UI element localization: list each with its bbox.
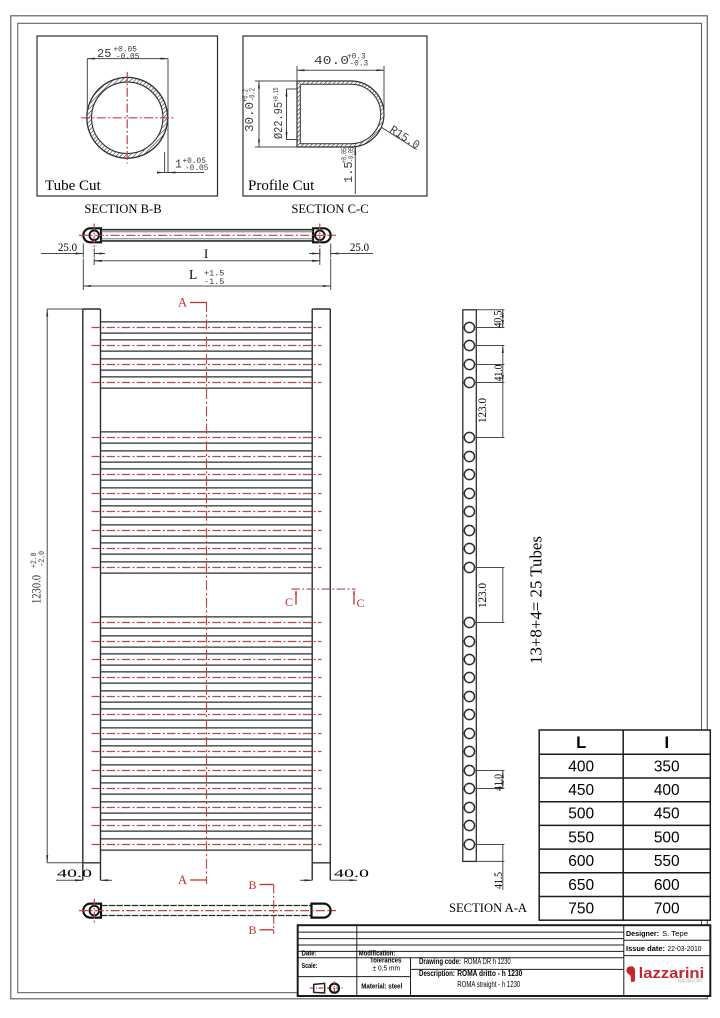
svg-text:C: C	[285, 595, 293, 609]
svg-text:+0.15: +0.15	[273, 88, 281, 103]
svg-text:Material: steel: Material: steel	[361, 981, 402, 990]
svg-text:Designer:: Designer:	[626, 929, 659, 938]
svg-text:700: 700	[654, 901, 680, 918]
svg-text:ROMA DR h 1230: ROMA DR h 1230	[464, 957, 511, 966]
svg-text:A: A	[178, 873, 187, 887]
svg-text:B: B	[249, 878, 257, 892]
svg-text:25: 25	[97, 47, 111, 61]
svg-text:SECTION B-B: SECTION B-B	[84, 202, 161, 216]
svg-text:350: 350	[654, 758, 680, 775]
svg-text:13+8+4= 25 Tubes: 13+8+4= 25 Tubes	[527, 536, 546, 664]
svg-text:-0.3: -0.3	[350, 61, 369, 69]
svg-text:-0.2: -0.2	[250, 88, 258, 101]
svg-text:600: 600	[568, 853, 594, 870]
svg-text:ROMA dritto - h 1230: ROMA dritto - h 1230	[457, 969, 523, 978]
svg-text:500: 500	[568, 806, 594, 823]
svg-text:Profile Cut: Profile Cut	[248, 178, 315, 194]
svg-text:Issue date:: Issue date:	[626, 944, 665, 953]
svg-text:Drawing code:: Drawing code:	[419, 957, 461, 966]
svg-text:22-03-2010: 22-03-2010	[668, 944, 702, 953]
svg-text:1230.0: 1230.0	[30, 575, 44, 604]
svg-text:S. Tepe: S. Tepe	[662, 929, 688, 938]
svg-text:Tube Cut: Tube Cut	[45, 178, 102, 194]
svg-text:40.0: 40.0	[314, 54, 349, 68]
svg-text:550: 550	[654, 853, 680, 870]
svg-text:SECTION C-C: SECTION C-C	[291, 202, 368, 216]
svg-text:1: 1	[175, 159, 182, 172]
svg-text:40.0: 40.0	[57, 866, 92, 880]
svg-text:123.0: 123.0	[477, 398, 489, 423]
svg-text:Description:: Description:	[419, 969, 455, 978]
svg-text:-2.0: -2.0	[38, 551, 47, 567]
svg-text:SECTION A-A: SECTION A-A	[449, 901, 527, 915]
svg-text:650: 650	[568, 877, 594, 894]
svg-text:450: 450	[654, 806, 680, 823]
svg-text:25.0: 25.0	[58, 242, 77, 254]
svg-text:123.0: 123.0	[477, 583, 489, 608]
svg-text:25.0: 25.0	[350, 242, 369, 254]
svg-text:-0.05: -0.05	[349, 147, 357, 162]
svg-text:-0.05: -0.05	[116, 54, 140, 62]
svg-text:600: 600	[654, 877, 680, 894]
svg-text:41.5: 41.5	[493, 872, 505, 889]
svg-text:I: I	[664, 734, 669, 752]
svg-text:RADIATORI: RADIATORI	[678, 979, 702, 985]
svg-text:450: 450	[568, 782, 594, 799]
svg-text:41.0: 41.0	[493, 364, 505, 381]
svg-text:400: 400	[568, 758, 594, 775]
svg-text:30.0: 30.0	[243, 102, 257, 132]
svg-text:Ø22.95: Ø22.95	[272, 102, 286, 139]
svg-text:40.5: 40.5	[493, 310, 505, 327]
svg-text:ROMA straight - h 1230: ROMA straight - h 1230	[457, 980, 521, 989]
svg-text:500: 500	[654, 829, 680, 846]
svg-text:C: C	[357, 596, 365, 610]
svg-text:B: B	[249, 923, 257, 937]
svg-text:A: A	[178, 296, 187, 310]
svg-text:Scale:: Scale:	[302, 961, 318, 970]
svg-text:I: I	[204, 247, 208, 261]
svg-text:± 0,5 mm: ± 0,5 mm	[373, 964, 401, 973]
svg-text:750: 750	[568, 901, 594, 918]
svg-text:L: L	[189, 267, 197, 282]
svg-text:41.0: 41.0	[493, 774, 505, 791]
svg-text:40.0: 40.0	[334, 866, 369, 880]
svg-text:Date:: Date:	[302, 948, 317, 957]
svg-text:1.5: 1.5	[342, 161, 356, 183]
svg-text:-1.5: -1.5	[204, 277, 224, 287]
svg-text:-0.05: -0.05	[185, 165, 209, 173]
svg-text:400: 400	[654, 782, 680, 799]
svg-text:550: 550	[568, 829, 594, 846]
svg-text:L: L	[576, 734, 586, 752]
